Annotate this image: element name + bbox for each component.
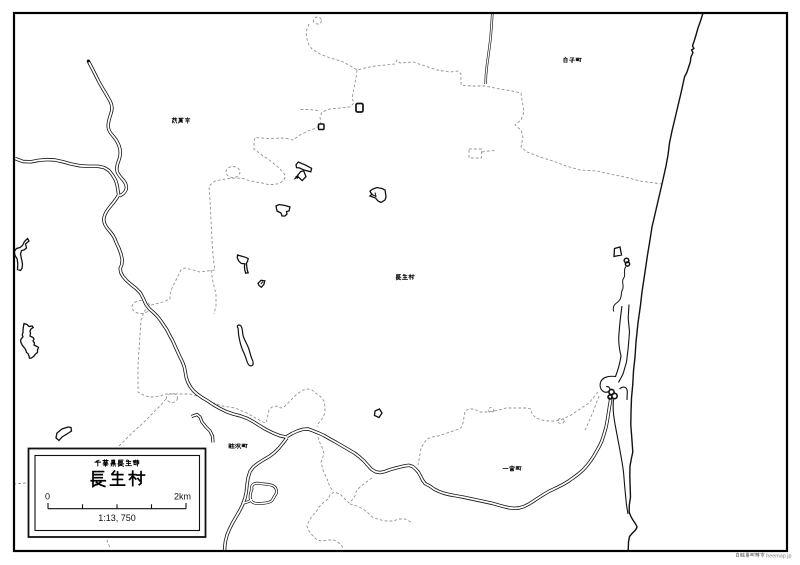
svg-text:2km: 2km [174, 492, 191, 502]
svg-text:1:13, 750: 1:13, 750 [98, 513, 136, 523]
svg-text:freemap.jp: freemap.jp [766, 554, 791, 560]
svg-text:0: 0 [45, 492, 50, 502]
